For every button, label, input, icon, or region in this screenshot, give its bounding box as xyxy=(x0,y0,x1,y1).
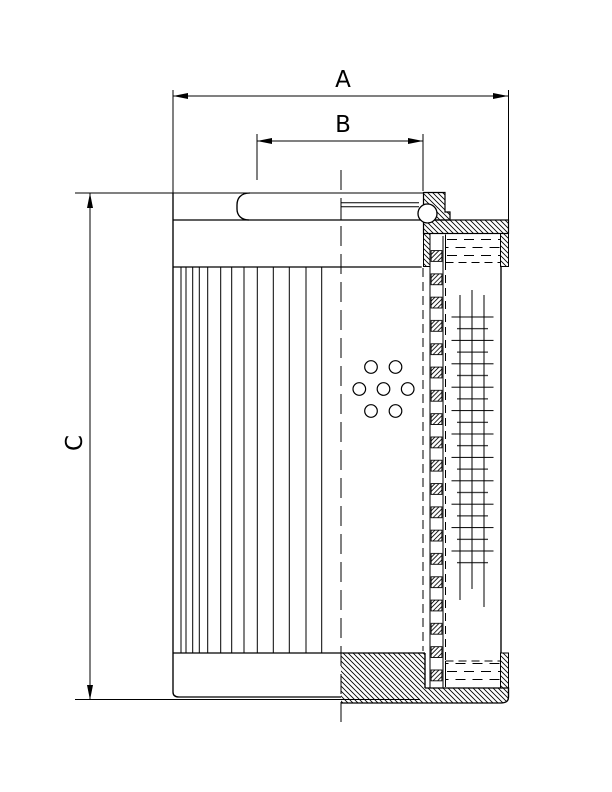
dimension-b-arrow-left xyxy=(257,138,272,144)
dimension-c: C xyxy=(62,193,420,700)
dimension-c-label: C xyxy=(62,435,88,451)
dimension-c-arrow-bottom xyxy=(87,685,93,700)
top-cap-section-flange xyxy=(424,220,509,234)
mesh-media xyxy=(452,290,494,607)
media-bottom-block xyxy=(446,661,501,687)
bottom-cap-outer-ring xyxy=(501,653,509,688)
top-cap-inner-collar xyxy=(424,234,431,267)
pleat-lines xyxy=(181,268,322,654)
dimension-b: B xyxy=(257,112,423,191)
dimension-a-arrow-right xyxy=(493,93,508,99)
dimension-c-arrow-top xyxy=(87,193,93,208)
element-external-view xyxy=(75,193,425,697)
o-ring xyxy=(418,204,437,223)
dimension-a-label: A xyxy=(335,67,351,93)
dimension-b-arrow-right xyxy=(408,138,423,144)
dimension-a: A xyxy=(173,67,509,220)
top-cap-dome-corner xyxy=(237,193,250,220)
technical-drawing-page: A B C xyxy=(0,0,612,792)
element-section-view xyxy=(341,193,509,704)
filter-element-drawing: A B C xyxy=(0,0,612,792)
media-top-block xyxy=(446,235,501,263)
top-cap-outer-ring xyxy=(501,234,509,267)
perforation-holes xyxy=(353,361,414,418)
dimension-b-label: B xyxy=(335,112,351,138)
core-tube xyxy=(430,236,443,688)
top-cap-groove xyxy=(341,203,419,220)
dimension-a-arrow-left xyxy=(173,93,188,99)
